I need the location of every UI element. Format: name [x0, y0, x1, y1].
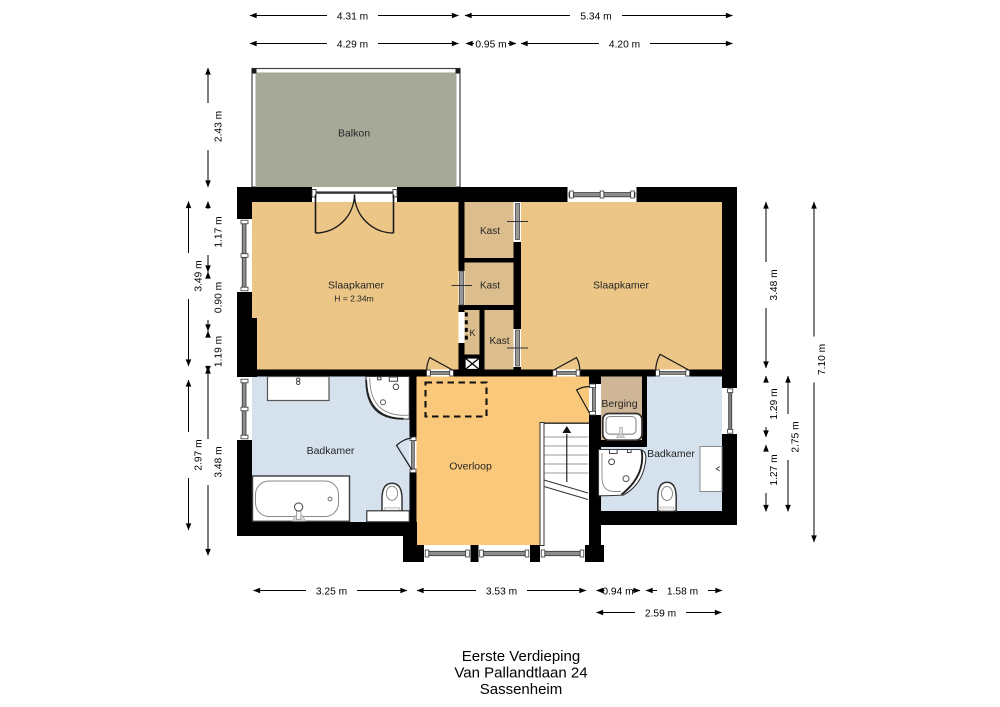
- svg-text:Kast: Kast: [480, 226, 500, 237]
- svg-text:Badkamer: Badkamer: [647, 448, 695, 460]
- svg-text:2.59 m: 2.59 m: [645, 609, 676, 620]
- svg-text:1.27 m: 1.27 m: [769, 454, 780, 485]
- svg-text:H = 2.34m: H = 2.34m: [334, 294, 373, 304]
- svg-text:2.97 m: 2.97 m: [194, 439, 205, 470]
- svg-text:1.58 m: 1.58 m: [667, 587, 698, 598]
- svg-text:3.48 m: 3.48 m: [769, 269, 780, 300]
- svg-text:3.53 m: 3.53 m: [486, 587, 517, 598]
- svg-text:Overloop: Overloop: [449, 461, 492, 473]
- svg-text:Kast: Kast: [480, 281, 500, 292]
- svg-text:0.94 m: 0.94 m: [602, 587, 633, 598]
- svg-text:0.90 m: 0.90 m: [214, 282, 225, 313]
- svg-text:3.48 m: 3.48 m: [214, 446, 225, 477]
- svg-text:3.49 m: 3.49 m: [194, 260, 205, 291]
- svg-text:0.95 m: 0.95 m: [475, 40, 506, 51]
- svg-text:Sassenheim: Sassenheim: [480, 681, 563, 698]
- svg-text:4.20 m: 4.20 m: [609, 40, 640, 51]
- svg-text:4.29 m: 4.29 m: [337, 40, 368, 51]
- svg-text:Slaapkamer: Slaapkamer: [328, 280, 385, 292]
- svg-text:Kast: Kast: [489, 336, 509, 347]
- svg-text:2.43 m: 2.43 m: [214, 111, 225, 142]
- svg-text:1.19 m: 1.19 m: [214, 336, 225, 367]
- svg-text:2.75 m: 2.75 m: [791, 421, 802, 452]
- svg-text:Berging: Berging: [601, 398, 637, 410]
- svg-text:Balkon: Balkon: [338, 128, 370, 140]
- svg-text:1.29 m: 1.29 m: [769, 388, 780, 419]
- svg-text:Eerste Verdieping: Eerste Verdieping: [462, 648, 580, 665]
- svg-text:7.10 m: 7.10 m: [817, 344, 828, 375]
- svg-text:Van Pallandtlaan 24: Van Pallandtlaan 24: [454, 665, 587, 682]
- svg-text:3.25 m: 3.25 m: [316, 587, 347, 598]
- svg-text:Badkamer: Badkamer: [307, 445, 355, 457]
- svg-text:K: K: [469, 328, 475, 338]
- svg-text:1.17 m: 1.17 m: [214, 216, 225, 247]
- svg-text:4.31 m: 4.31 m: [337, 12, 368, 23]
- svg-text:5.34 m: 5.34 m: [580, 12, 611, 23]
- svg-text:Slaapkamer: Slaapkamer: [593, 280, 650, 292]
